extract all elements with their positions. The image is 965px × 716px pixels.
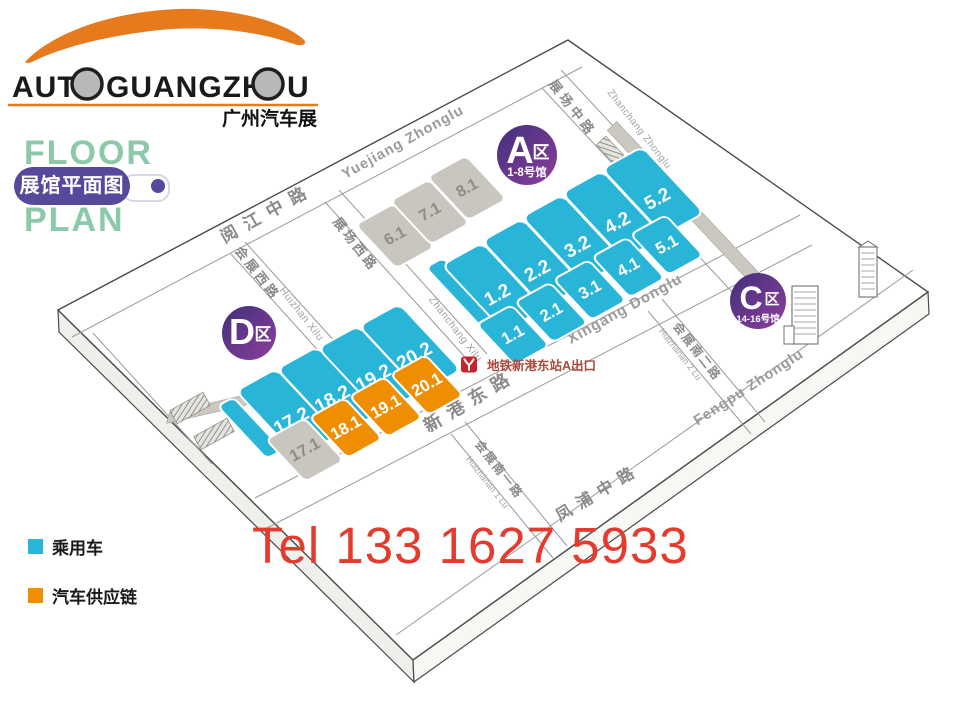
floor-plan-badge: 展馆平面图 xyxy=(14,167,130,205)
floor-plan-title-line2: PLAN xyxy=(24,201,125,240)
logo-graphic: AUT GUANGZH U 广州汽车展 xyxy=(0,0,340,132)
zone-badge-A: A区1-8号馆 xyxy=(497,125,557,185)
logo-swoosh xyxy=(25,9,305,63)
auto-guangzhou-logo: AUT GUANGZH U 广州汽车展 xyxy=(0,0,340,132)
contact-phone: Tel 133 1627 5933 xyxy=(252,516,689,575)
zone-letter: C xyxy=(739,280,762,316)
building-icon xyxy=(859,241,877,297)
supply-color-swatch xyxy=(28,588,43,603)
zone-badge-D: D区 xyxy=(222,306,276,360)
zone-suffix: 区 xyxy=(764,291,779,308)
metro-exit-label: 地铁新港东站A出口 xyxy=(487,358,596,373)
passenger-color-swatch xyxy=(28,539,43,554)
legend-item-passenger: 乘用车 xyxy=(28,534,137,559)
zone-subtitle: 1-8号馆 xyxy=(507,165,547,179)
logo-o-icon xyxy=(253,69,283,99)
logo-text-u: U xyxy=(287,71,309,104)
floor-plan-page: 阅江中路Yuejiang Zhonglu展场中路Zhanchang Zhongl… xyxy=(0,0,965,711)
logo-o-icon xyxy=(72,69,102,99)
zone-badge-C: C区14-16号馆 xyxy=(730,273,786,329)
legend-label: 乘用车 xyxy=(52,534,103,559)
badge-dot-icon xyxy=(151,179,165,193)
zone-letter: A xyxy=(506,130,533,172)
legend-label: 汽车供应链 xyxy=(52,583,137,608)
zone-subtitle: 14-16号馆 xyxy=(736,313,780,325)
zone-suffix: 区 xyxy=(533,143,550,162)
zone-letter: D xyxy=(229,311,255,352)
legend: 乘用车 汽车供应链 xyxy=(28,534,137,632)
logo-text-aut: AUT xyxy=(12,71,77,104)
zone-suffix: 区 xyxy=(255,325,272,344)
legend-item-supply: 汽车供应链 xyxy=(28,583,137,608)
logo-subtitle: 广州汽车展 xyxy=(222,107,317,130)
logo-text-guangzh: GUANGZH xyxy=(106,71,265,104)
